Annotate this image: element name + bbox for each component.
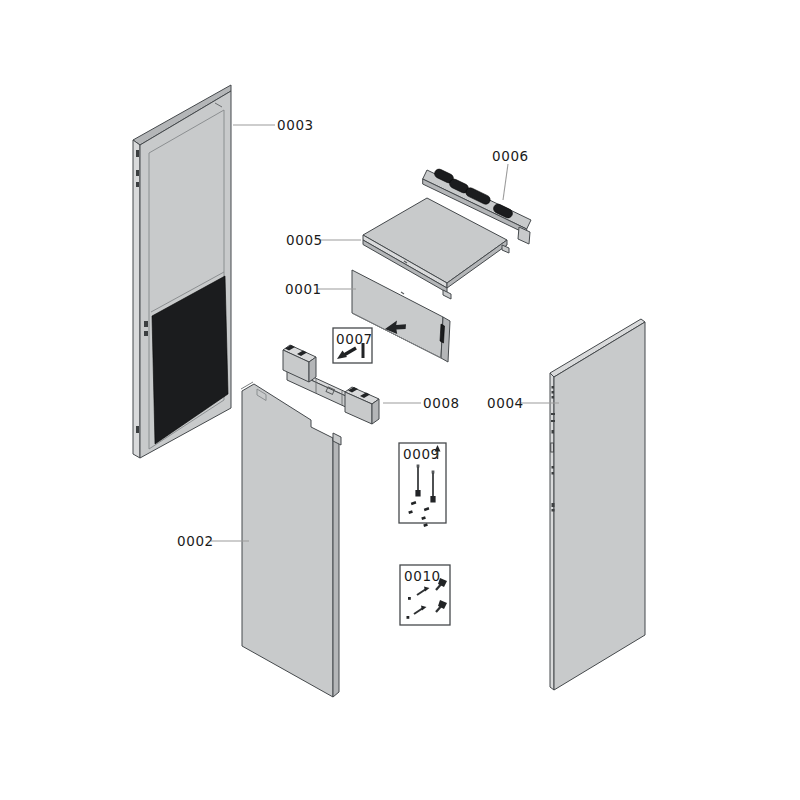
hinge-mark	[136, 170, 139, 176]
diagram-canvas: 0003 0006 0005 0001 0	[0, 0, 800, 800]
strip-end-tab	[518, 227, 530, 244]
edge-detail	[552, 391, 555, 394]
part-label-0006: 0006	[492, 148, 529, 164]
front-panel-slot	[440, 324, 445, 343]
part-label-0007: 0007	[336, 331, 373, 347]
part-label-0001: 0001	[285, 281, 322, 297]
part-label-0010: 0010	[404, 568, 441, 584]
top-panel-foot	[502, 245, 509, 253]
hinge-mark	[136, 426, 139, 433]
part-0003-door-panel	[133, 85, 231, 458]
part-label-0003: 0003	[277, 117, 314, 133]
part-0007-fastener-kit: 0007	[333, 328, 373, 363]
part-label-0005: 0005	[286, 232, 323, 248]
front-panel-mark	[401, 292, 404, 294]
part-label-0004: 0004	[487, 395, 524, 411]
part-label-0008: 0008	[423, 395, 460, 411]
side-panel-thickness	[333, 438, 339, 697]
edge-detail	[552, 472, 555, 475]
edge-detail	[552, 503, 555, 507]
edge-detail	[552, 430, 555, 434]
left-block-side	[309, 357, 316, 382]
edge-detail	[552, 509, 555, 512]
edge-detail	[551, 420, 555, 422]
dot-fastener	[408, 597, 411, 600]
part-0009-screw-set: 0009	[399, 443, 446, 527]
part-label-0002: 0002	[177, 533, 214, 549]
hinge-mark	[144, 331, 148, 336]
side-panel-face	[242, 384, 333, 697]
side-panel-face	[554, 322, 645, 690]
edge-detail	[552, 396, 555, 399]
part-label-0009: 0009	[403, 446, 440, 462]
edge-detail	[552, 386, 555, 389]
right-block-side	[372, 399, 379, 424]
exploded-parts-diagram: 0003 0006 0005 0001 0	[0, 0, 800, 800]
edge-detail	[551, 413, 555, 415]
pin-icon	[362, 343, 365, 358]
part-0002-side-panel	[241, 382, 341, 697]
small-screw-icon	[423, 523, 428, 527]
screw-head	[415, 490, 420, 497]
dot-fastener	[407, 616, 410, 619]
edge-detail	[552, 466, 555, 469]
hinge-mark	[136, 182, 139, 187]
hinge-mark	[136, 150, 139, 157]
part-0010-screw-set: 0010	[400, 565, 450, 625]
screw-head	[430, 496, 435, 503]
hinge-mark	[144, 321, 148, 327]
part-0004-side-panel	[550, 319, 645, 690]
leader-0006	[503, 164, 508, 200]
door-left-frame	[133, 140, 140, 458]
